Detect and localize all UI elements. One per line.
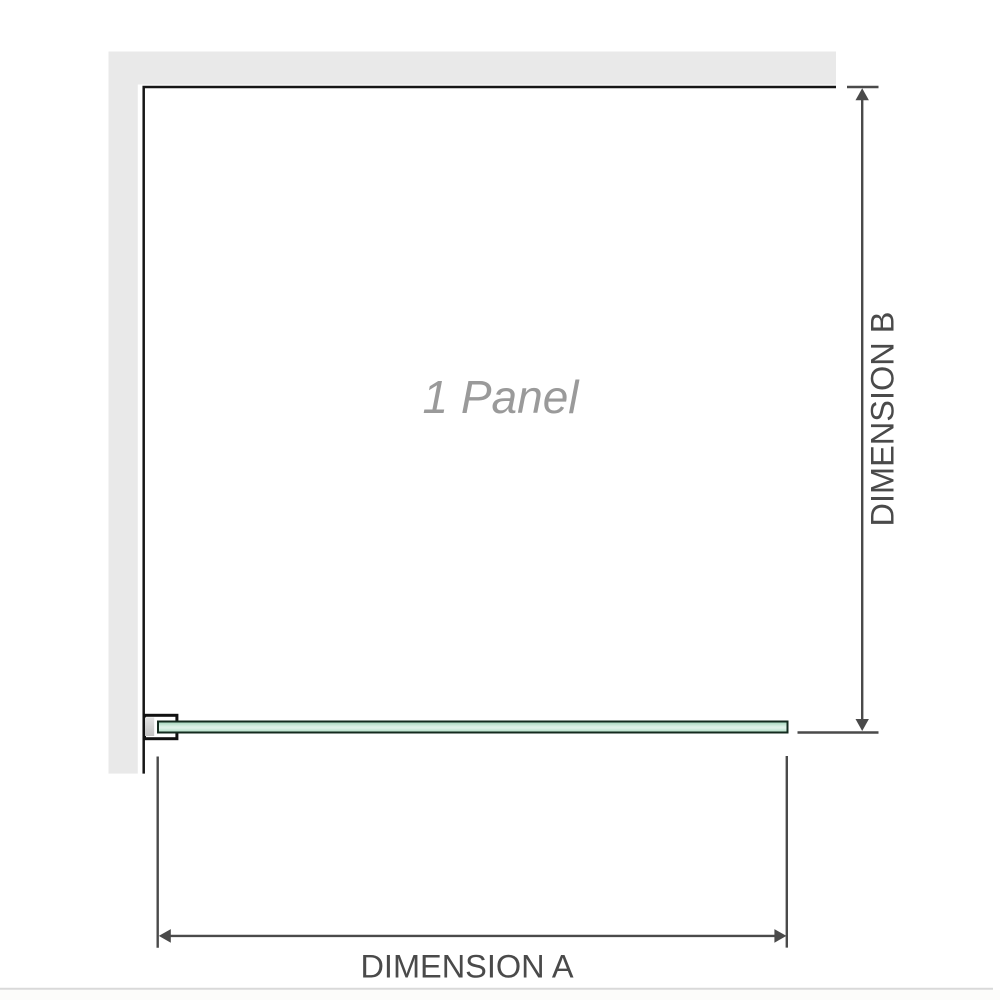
svg-text:1 Panel: 1 Panel (422, 371, 580, 423)
svg-text:DIMENSION A: DIMENSION A (360, 949, 573, 985)
svg-text:DIMENSION B: DIMENSION B (864, 312, 900, 527)
